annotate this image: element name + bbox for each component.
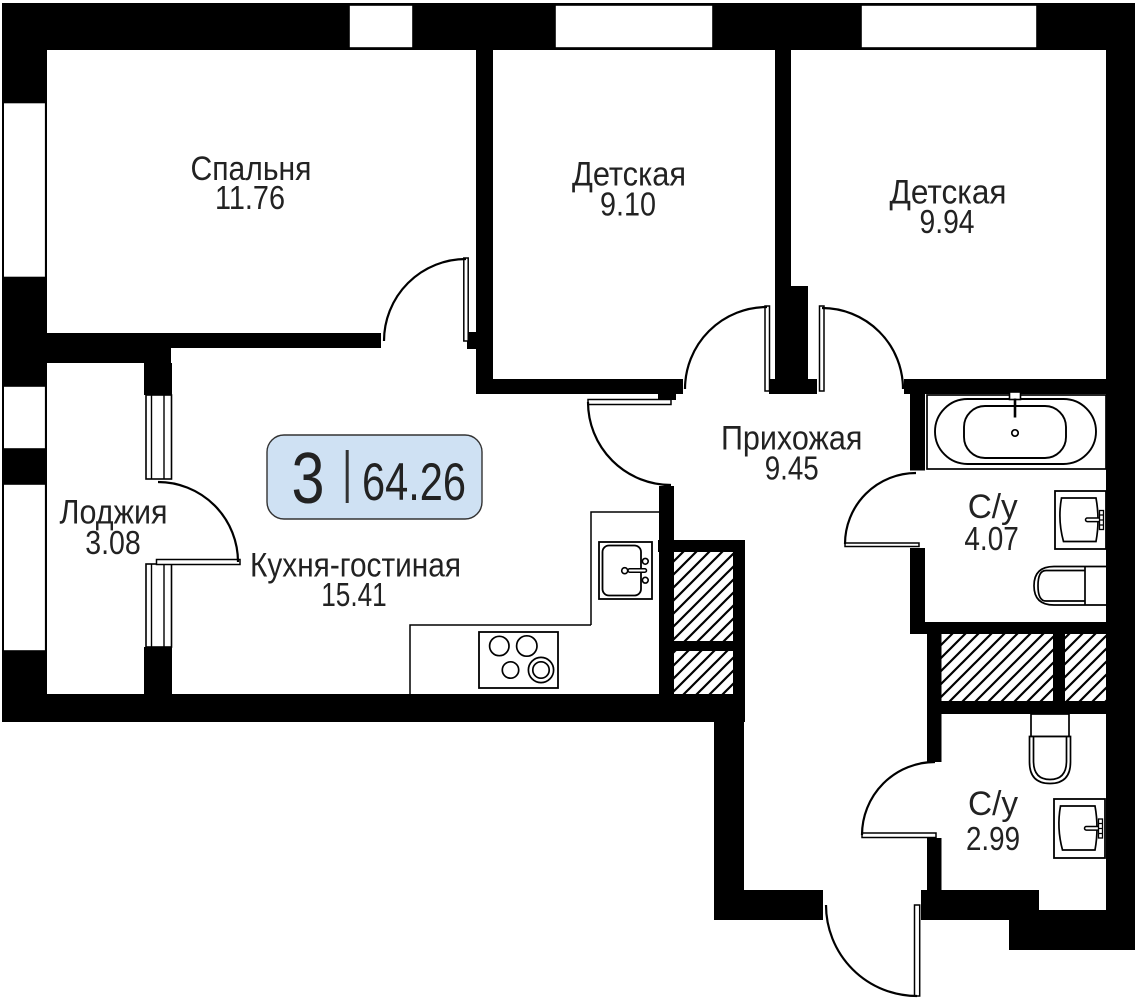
svg-text:9.10: 9.10 — [600, 186, 656, 223]
svg-text:15.41: 15.41 — [321, 576, 387, 613]
svg-text:64.26: 64.26 — [362, 453, 466, 512]
svg-text:9.45: 9.45 — [765, 450, 819, 487]
svg-text:11.76: 11.76 — [215, 179, 285, 216]
svg-text:2.99: 2.99 — [966, 820, 1020, 857]
svg-text:4.07: 4.07 — [964, 520, 1018, 557]
svg-text:3: 3 — [292, 439, 325, 519]
svg-text:3.08: 3.08 — [85, 524, 141, 561]
svg-text:9.94: 9.94 — [920, 203, 975, 240]
svg-text:С/у: С/у — [968, 785, 1018, 823]
